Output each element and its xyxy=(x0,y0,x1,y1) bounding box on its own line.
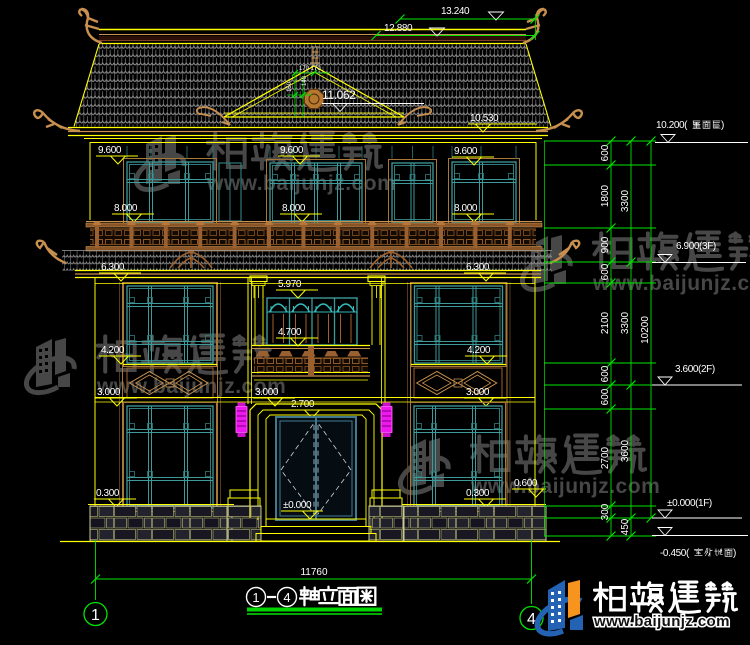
svg-text:10.530: 10.530 xyxy=(470,113,499,124)
svg-text:8.000: 8.000 xyxy=(454,203,478,214)
svg-text:170 170: 170 170 xyxy=(299,66,321,72)
svg-text:3.600(2F): 3.600(2F) xyxy=(675,364,715,375)
svg-text:9.600: 9.600 xyxy=(280,145,304,156)
svg-text:5.970: 5.970 xyxy=(278,279,302,290)
svg-text:8.000: 8.000 xyxy=(282,203,306,214)
svg-text:www.baijunjz.com: www.baijunjz.com xyxy=(470,475,660,498)
svg-text:3.000: 3.000 xyxy=(255,387,279,398)
svg-text:1: 1 xyxy=(91,607,100,624)
svg-text:10.200(: 10.200( xyxy=(656,120,688,131)
svg-text:13.240: 13.240 xyxy=(441,6,470,17)
svg-text:6.300: 6.300 xyxy=(466,262,490,273)
svg-text:-0.450(: -0.450( xyxy=(660,548,690,559)
svg-text:www.baijunjz.com: www.baijunjz.com xyxy=(593,613,730,630)
svg-text:6.300: 6.300 xyxy=(101,262,125,273)
svg-text:2100: 2100 xyxy=(600,311,611,334)
svg-text:1800: 1800 xyxy=(600,184,611,207)
svg-text:11.062: 11.062 xyxy=(322,88,356,102)
svg-text:3.000: 3.000 xyxy=(466,387,490,398)
svg-text:4: 4 xyxy=(283,590,290,605)
svg-text:0.300: 0.300 xyxy=(96,488,120,499)
svg-text:9.600: 9.600 xyxy=(454,146,478,157)
svg-text:450: 450 xyxy=(620,518,631,535)
svg-text:4.200: 4.200 xyxy=(467,345,491,356)
svg-text:9.600: 9.600 xyxy=(98,145,122,156)
svg-text:6.900(3F): 6.900(3F) xyxy=(676,241,716,252)
svg-text:600: 600 xyxy=(600,263,611,280)
svg-text:600: 600 xyxy=(600,365,611,382)
svg-text:4.200: 4.200 xyxy=(101,345,125,356)
svg-text:0.300: 0.300 xyxy=(466,488,490,499)
svg-text:11760: 11760 xyxy=(300,567,328,578)
svg-text:140: 140 xyxy=(302,75,308,86)
svg-text:2700: 2700 xyxy=(600,446,611,469)
svg-text:300: 300 xyxy=(600,503,611,520)
svg-text:10200: 10200 xyxy=(640,316,651,344)
svg-text:4.700: 4.700 xyxy=(278,327,302,338)
svg-text:150: 150 xyxy=(287,81,293,92)
svg-text:0.600: 0.600 xyxy=(514,478,538,489)
svg-text:±0.000(1F): ±0.000(1F) xyxy=(667,498,712,509)
svg-text:): ) xyxy=(733,548,736,559)
svg-text:): ) xyxy=(721,120,724,131)
svg-text:www.baijunjz.com: www.baijunjz.com xyxy=(592,272,750,295)
svg-text:3300: 3300 xyxy=(620,189,631,212)
svg-text:3.000: 3.000 xyxy=(97,387,121,398)
svg-text:8.000: 8.000 xyxy=(114,203,138,214)
svg-text:3300: 3300 xyxy=(620,311,631,334)
svg-text:600: 600 xyxy=(600,144,611,161)
svg-text:600: 600 xyxy=(600,388,611,405)
svg-text:±0.000: ±0.000 xyxy=(283,500,312,511)
svg-text:3600: 3600 xyxy=(620,439,631,462)
svg-text:1: 1 xyxy=(252,590,259,605)
svg-text:900: 900 xyxy=(600,236,611,253)
svg-text:12.880: 12.880 xyxy=(384,23,413,34)
